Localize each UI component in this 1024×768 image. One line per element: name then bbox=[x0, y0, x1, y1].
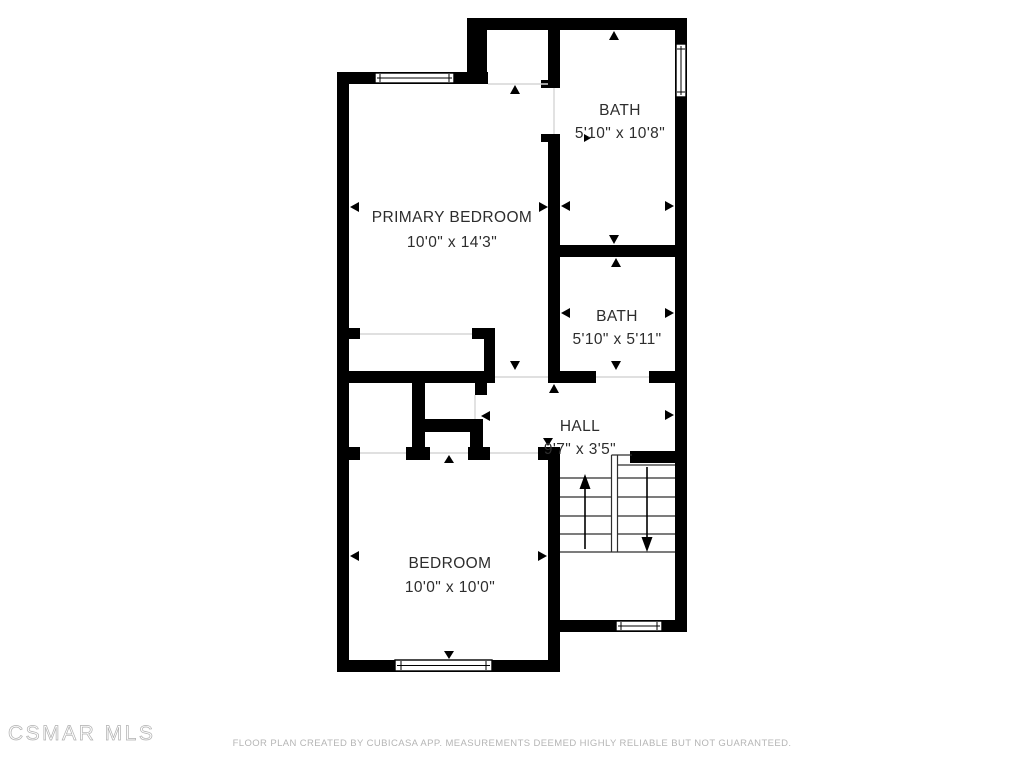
wall-bath-left-upper bbox=[548, 30, 560, 88]
arrow-right-icon bbox=[665, 308, 674, 318]
watermark: CSMAR MLS bbox=[8, 722, 155, 745]
floor-plan-canvas: PRIMARY BEDROOM 10'0" x 14'3" BATH 5'10"… bbox=[0, 0, 1024, 768]
arrow-left-icon bbox=[350, 202, 359, 212]
room-dims-bath-middle: 5'10" x 5'11" bbox=[572, 331, 661, 348]
wall-closet-top bbox=[337, 371, 495, 383]
room-labels: PRIMARY BEDROOM 10'0" x 14'3" BATH 5'10"… bbox=[372, 102, 665, 596]
floor-plan-page: PRIMARY BEDROOM 10'0" x 14'3" BATH 5'10"… bbox=[0, 0, 1024, 768]
arrow-up-icon bbox=[444, 455, 454, 463]
window-stair-landing bbox=[616, 621, 662, 631]
arrow-up-icon bbox=[609, 31, 619, 40]
arrow-up-icon bbox=[549, 384, 559, 393]
arrow-down-icon bbox=[609, 235, 619, 244]
window-primary-bedroom bbox=[375, 73, 454, 83]
wall-hall-top-left bbox=[548, 371, 596, 383]
room-dims-hall: 9'7" x 3'5" bbox=[544, 441, 616, 458]
room-label-bath-top: BATH bbox=[599, 102, 641, 119]
room-dims-primary-bedroom: 10'0" x 14'3" bbox=[407, 234, 497, 251]
arrow-down-icon bbox=[611, 361, 621, 370]
wall-pb-closet-stub bbox=[337, 328, 360, 339]
arrow-down-icon bbox=[510, 361, 520, 370]
room-label-bedroom: BEDROOM bbox=[409, 555, 492, 572]
wall-bedroom-top-stub-1 bbox=[337, 447, 360, 460]
stairs-up-arrow-icon bbox=[580, 474, 591, 549]
wall-top bbox=[467, 18, 687, 30]
arrow-up-icon bbox=[510, 85, 520, 94]
wall-bedroom-right bbox=[548, 447, 560, 672]
arrow-right-icon bbox=[665, 410, 674, 420]
wall-closet-block bbox=[475, 382, 487, 395]
room-label-primary-bedroom: PRIMARY BEDROOM bbox=[372, 209, 532, 226]
wall-bedroom-top-stub-3 bbox=[468, 447, 490, 460]
arrow-right-icon bbox=[665, 201, 674, 211]
wall-bath-left-lower bbox=[548, 134, 560, 383]
staircase bbox=[560, 455, 675, 552]
arrow-right-icon bbox=[538, 551, 547, 561]
door-jamb-bottom bbox=[541, 134, 548, 142]
room-dims-bath-top: 5'10" x 10'8" bbox=[575, 125, 665, 142]
arrow-left-icon bbox=[561, 308, 570, 318]
wall-right bbox=[675, 18, 687, 632]
wall-hall-top-right bbox=[649, 371, 687, 383]
arrow-left-icon bbox=[350, 551, 359, 561]
arrow-down-icon bbox=[444, 651, 454, 659]
room-dims-bedroom: 10'0" x 10'0" bbox=[405, 579, 495, 596]
window-bath-right bbox=[676, 44, 686, 97]
arrow-up-icon bbox=[611, 258, 621, 267]
room-label-bath-middle: BATH bbox=[596, 308, 638, 325]
stairs-down-arrow-icon bbox=[642, 467, 653, 552]
room-label-hall: HALL bbox=[560, 418, 600, 435]
wall-pb-closet-corner-v bbox=[484, 328, 495, 383]
arrow-right-icon bbox=[539, 202, 548, 212]
window-bedroom bbox=[395, 660, 492, 671]
wall-bath-divider bbox=[548, 245, 687, 257]
arrow-left-icon bbox=[561, 201, 570, 211]
wall-bedroom-top-stub-2 bbox=[406, 447, 430, 460]
wall-stairwell-top bbox=[630, 451, 687, 463]
footer-disclaimer: FLOOR PLAN CREATED BY CUBICASA APP. MEAS… bbox=[233, 738, 792, 749]
